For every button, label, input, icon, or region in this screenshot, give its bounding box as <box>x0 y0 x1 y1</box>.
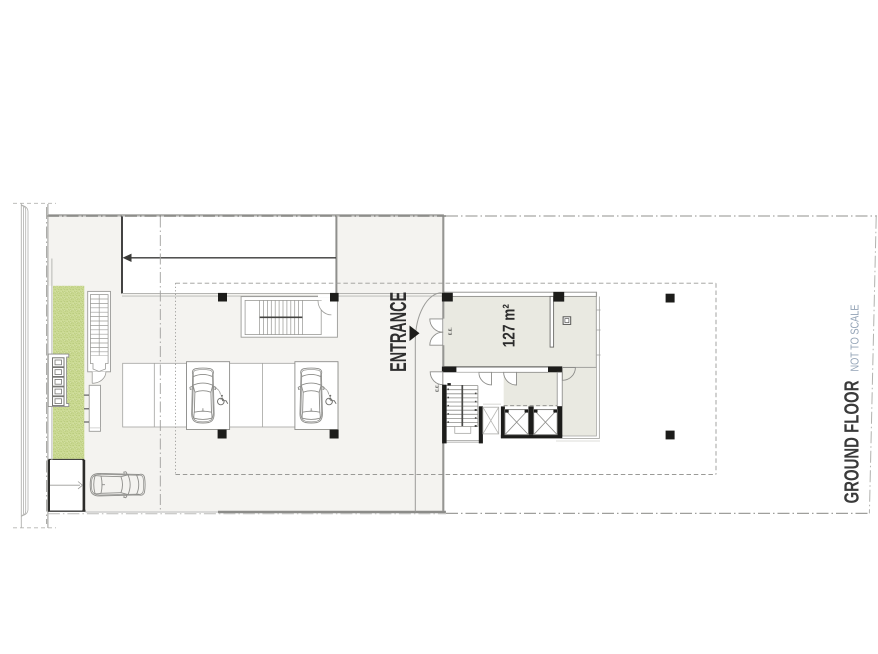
svg-text:127 m²: 127 m² <box>500 304 519 347</box>
svg-text:E.E.: E.E. <box>448 327 453 335</box>
svg-text:ENTRANCE: ENTRANCE <box>385 292 411 372</box>
svg-text:E.E.: E.E. <box>434 384 439 392</box>
